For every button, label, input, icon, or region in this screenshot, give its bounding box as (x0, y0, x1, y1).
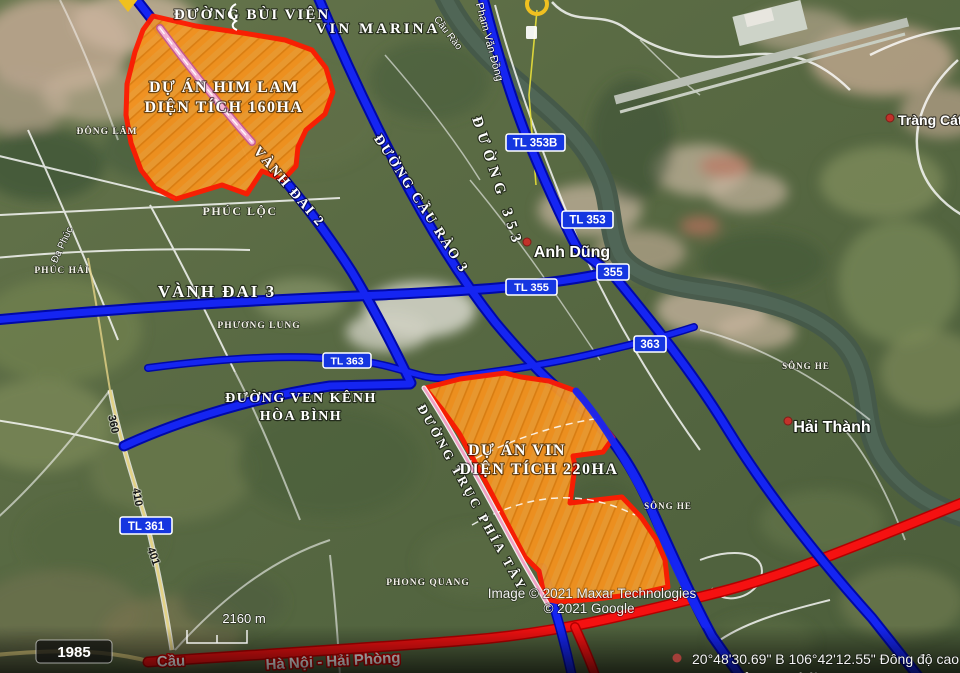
attribution-line1: Image © 2021 Maxar Technologies (488, 586, 697, 601)
svg-text:TL 353B: TL 353B (513, 138, 558, 150)
label-phong-quang: PHONG QUANG (386, 578, 470, 588)
label-vin-line1: DỰ ÁN VIN (468, 440, 566, 459)
trang-cat-marker-icon (886, 114, 894, 122)
label-ven-kenh-line1: ĐƯỜNG VEN KÊNH (225, 389, 377, 406)
badge-tl363: TL 363 (323, 353, 371, 368)
svg-text:TL 355: TL 355 (514, 282, 549, 294)
hai-thanh-marker-icon (784, 417, 792, 425)
label-anh-dung: Anh Dũng (534, 244, 610, 261)
badge-tl353b: TL 353B (506, 134, 565, 151)
label-duong-bui-vien: ĐƯỜNG BÙI VIỆN (174, 6, 330, 23)
label-phuong-lung: PHƯƠNG LUNG (217, 320, 300, 331)
label-him-lam-line2: DIỆN TÍCH 160HA (144, 97, 303, 116)
year-badge: 1985 (36, 640, 112, 663)
scale-distance: 2160 m (222, 611, 265, 626)
satellite-map-viewport[interactable]: TL 353B TL 353 355 TL 355 TL 363 363 TL … (0, 0, 960, 673)
svg-text:TL 363: TL 363 (330, 356, 363, 368)
satellite-map[interactable]: TL 353B TL 353 355 TL 355 TL 363 363 TL … (0, 0, 960, 673)
label-phuc-hai: PHÚC HẢI (34, 264, 89, 276)
attribution-line2: © 2021 Google (543, 601, 634, 616)
svg-text:TL 353: TL 353 (569, 215, 605, 227)
bridge-icon (526, 26, 537, 39)
label-vanh-dai-3: VÀNH ĐAI 3 (158, 282, 276, 301)
label-song-he-south: SÔNG HE (644, 501, 692, 511)
label-hai-thanh: Hải Thành (793, 419, 870, 436)
svg-text:TL 361: TL 361 (128, 521, 165, 533)
label-trang-cat: Tràng Cát (898, 112, 960, 128)
label-ven-kenh-line2: HÒA BÌNH (260, 407, 342, 424)
svg-text:363: 363 (640, 339, 659, 351)
status-coordinates: 20°48'30.69" B 106°42'12.55" Đông độ cao (692, 651, 959, 667)
badge-363: 363 (634, 336, 666, 352)
svg-text:1985: 1985 (57, 644, 90, 661)
badge-tl361: TL 361 (120, 517, 172, 534)
label-vin-marina: VIN MARINA (316, 21, 441, 37)
anh-dung-marker-icon (523, 238, 531, 246)
status-camera-icon (673, 654, 682, 663)
badge-tl355: TL 355 (506, 279, 557, 295)
label-vin-line2: DIỆN TÍCH 220HA (459, 459, 618, 478)
label-him-lam-line1: DỰ ÁN HIM LAM (149, 77, 299, 96)
label-phuc-loc: PHÚC LỘC (203, 204, 278, 218)
label-song-he-north: SÔNG HE (782, 361, 830, 371)
badge-tl353: TL 353 (562, 211, 613, 228)
badge-355: 355 (597, 264, 629, 280)
svg-text:355: 355 (603, 267, 623, 279)
